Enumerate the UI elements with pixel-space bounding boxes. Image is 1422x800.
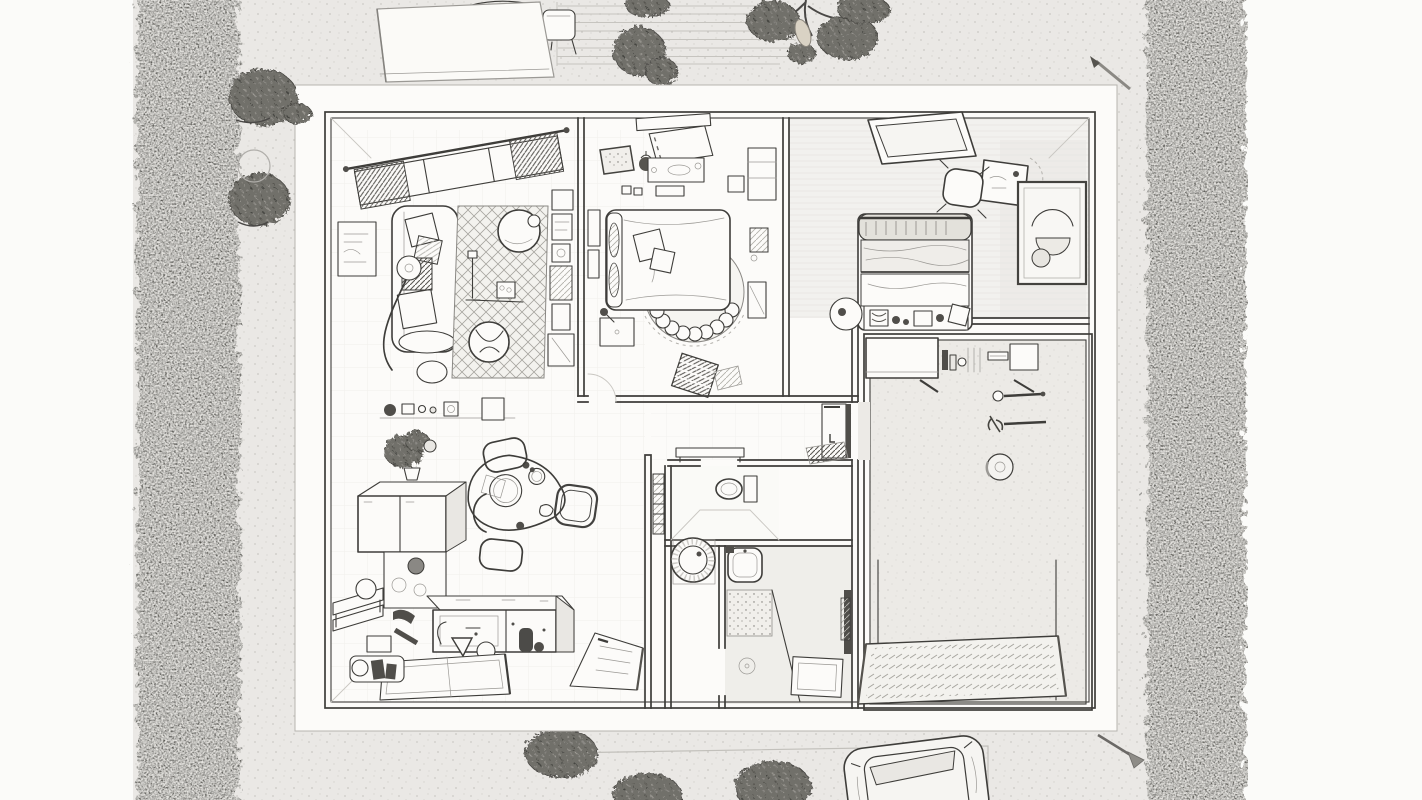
media-shelving [548, 190, 574, 366]
right-margin [1240, 0, 1422, 800]
skylight-window [868, 112, 976, 164]
armchair [469, 322, 509, 362]
single-bed [858, 214, 972, 330]
round-side-table [830, 298, 862, 330]
sofa [392, 206, 458, 353]
wash-basin [726, 546, 762, 582]
left-margin [0, 0, 133, 800]
wall-frames [588, 210, 600, 278]
bed-pillow-2 [650, 248, 675, 273]
abstract-wall-art [1018, 182, 1086, 284]
pouf [417, 361, 447, 383]
side-table [497, 282, 515, 298]
washing-machine [671, 538, 715, 582]
double-bed [606, 210, 730, 310]
paper-holder [987, 454, 1013, 480]
bath-mat [791, 657, 843, 698]
sketch-canvas [0, 0, 1422, 800]
tiled-shower-tray [858, 636, 1066, 704]
wc-floor [671, 466, 779, 540]
small-box [367, 636, 391, 652]
decor-tray [600, 146, 634, 174]
towel-shelf [653, 474, 664, 534]
deck-awning [377, 2, 554, 82]
wall-art [338, 222, 376, 276]
bar-stool [356, 579, 376, 599]
kitchen-island [427, 596, 574, 660]
floor-plan-illustration [0, 0, 1422, 800]
bath-corridor-floor [858, 402, 870, 460]
serving-tray [350, 656, 404, 682]
refrigerator [358, 482, 466, 552]
left-hedge [133, 0, 236, 800]
right-hedge [1143, 0, 1242, 800]
shrub-bottom-1 [524, 728, 596, 776]
speckled-shower-panel-dots [727, 590, 772, 636]
storage-row [864, 304, 970, 330]
coffee-table [498, 210, 540, 252]
